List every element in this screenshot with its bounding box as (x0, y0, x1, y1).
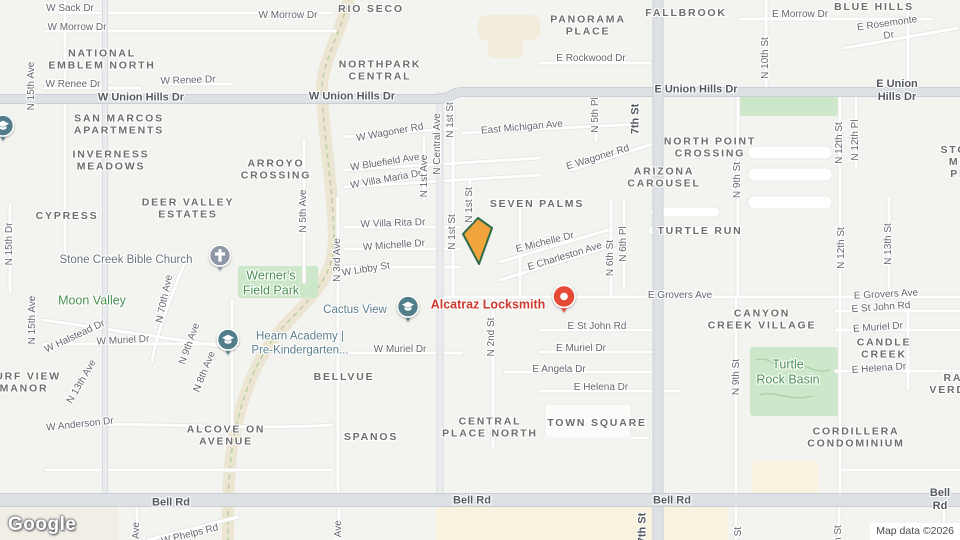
commercial-area (0, 507, 118, 540)
commercial-area (436, 507, 728, 540)
commercial-area (752, 461, 818, 496)
landuse-area (478, 15, 540, 40)
road-network (0, 0, 960, 540)
park-area-turtle-rock-basin (750, 347, 838, 416)
map-canvas[interactable]: NATIONAL EMBLEM NORTHSAN MARCOS APARTMEN… (0, 0, 960, 540)
highlighted-area-marker[interactable] (463, 218, 492, 264)
landuse-area (487, 38, 523, 58)
park-area (740, 96, 838, 116)
